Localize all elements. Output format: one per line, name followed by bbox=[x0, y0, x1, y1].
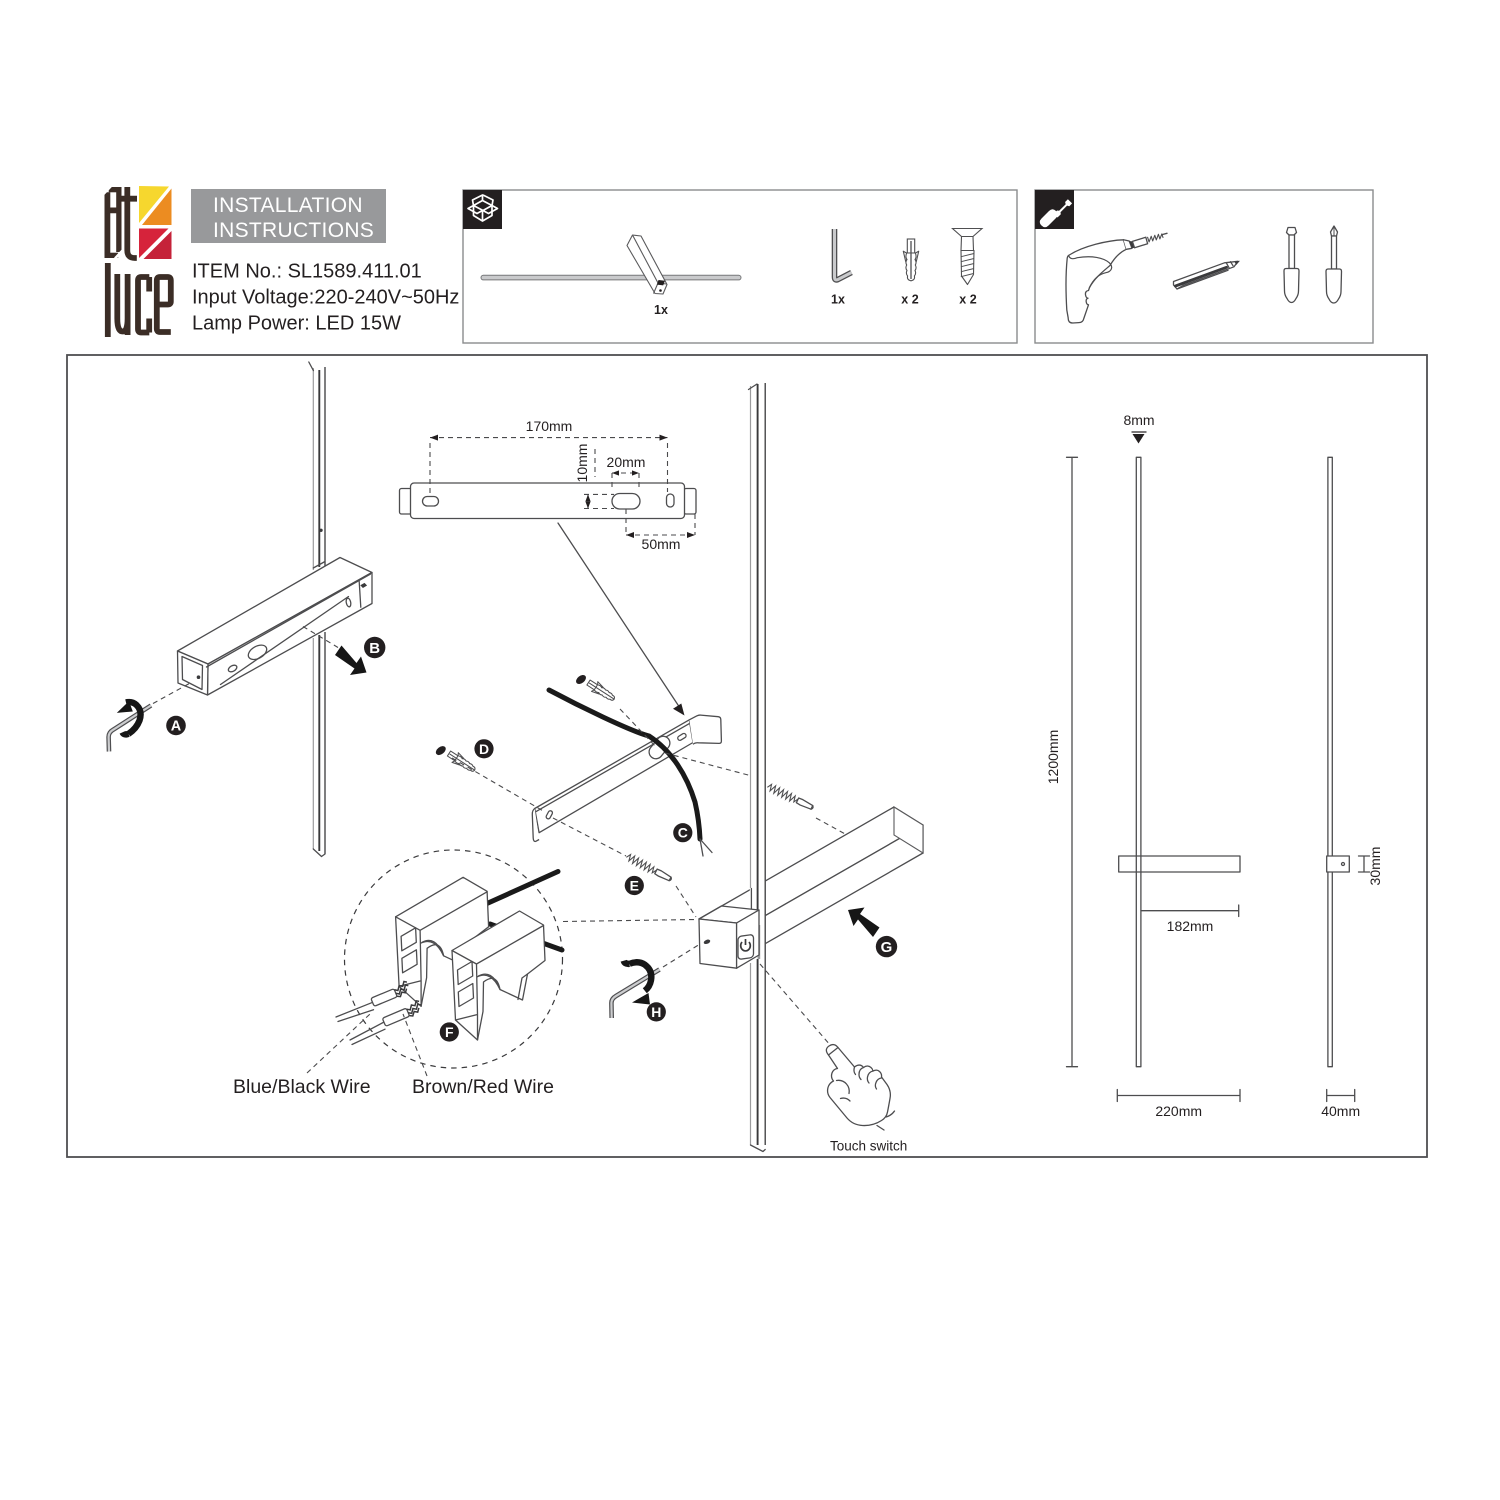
svg-text:50mm: 50mm bbox=[642, 536, 681, 552]
svg-text:x 2: x 2 bbox=[901, 293, 918, 307]
svg-text:INSTRUCTIONS: INSTRUCTIONS bbox=[213, 219, 374, 242]
svg-text:182mm: 182mm bbox=[1167, 918, 1214, 934]
svg-text:Touch switch: Touch switch bbox=[830, 1139, 907, 1154]
svg-text:B: B bbox=[369, 640, 380, 657]
svg-text:Lamp Power: LED 15W: Lamp Power: LED 15W bbox=[192, 313, 401, 335]
svg-text:Blue/Black Wire: Blue/Black Wire bbox=[233, 1076, 371, 1098]
svg-text:30mm: 30mm bbox=[1367, 847, 1383, 886]
svg-text:E: E bbox=[630, 878, 639, 894]
svg-text:C: C bbox=[678, 825, 688, 841]
svg-text:40mm: 40mm bbox=[1321, 1103, 1360, 1119]
svg-text:x 2: x 2 bbox=[959, 293, 976, 307]
svg-text:D: D bbox=[479, 741, 489, 757]
svg-text:Brown/Red Wire: Brown/Red Wire bbox=[412, 1076, 554, 1098]
svg-text:8mm: 8mm bbox=[1123, 412, 1154, 428]
svg-text:220mm: 220mm bbox=[1155, 1103, 1202, 1119]
svg-text:INSTALLATION: INSTALLATION bbox=[213, 194, 363, 217]
svg-text:1x: 1x bbox=[654, 303, 668, 317]
svg-text:170mm: 170mm bbox=[526, 418, 573, 434]
svg-text:1x: 1x bbox=[831, 293, 845, 307]
svg-text:1200mm: 1200mm bbox=[1045, 730, 1061, 784]
svg-text:ITEM No.: SL1589.411.01: ITEM No.: SL1589.411.01 bbox=[192, 261, 422, 283]
svg-text:F: F bbox=[445, 1024, 454, 1040]
svg-text:20mm: 20mm bbox=[607, 454, 646, 470]
svg-text:G: G bbox=[881, 939, 893, 956]
svg-text:10mm: 10mm bbox=[574, 444, 590, 483]
svg-text:H: H bbox=[651, 1004, 661, 1020]
svg-text:A: A bbox=[171, 719, 182, 735]
svg-text:Input Voltage:220-240V~50Hz: Input Voltage:220-240V~50Hz bbox=[192, 287, 459, 309]
